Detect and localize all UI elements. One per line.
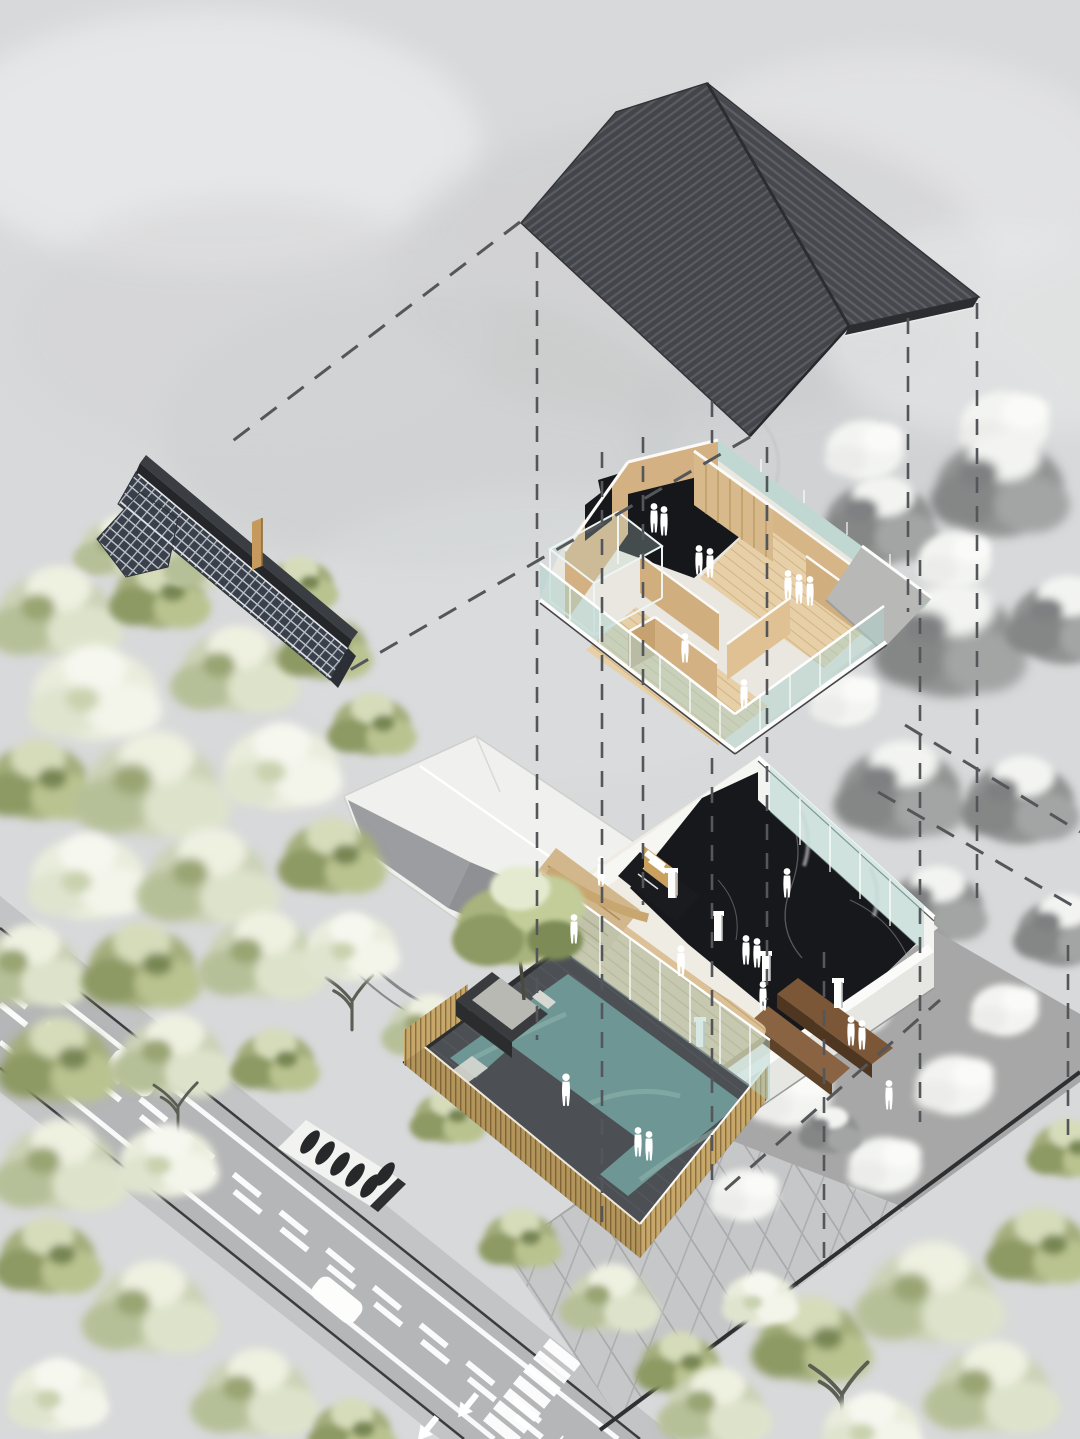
eave-timber-post (252, 518, 262, 570)
site-axonometric-canvas (0, 0, 1080, 1439)
axonometric-diagram-stage (0, 0, 1080, 1439)
